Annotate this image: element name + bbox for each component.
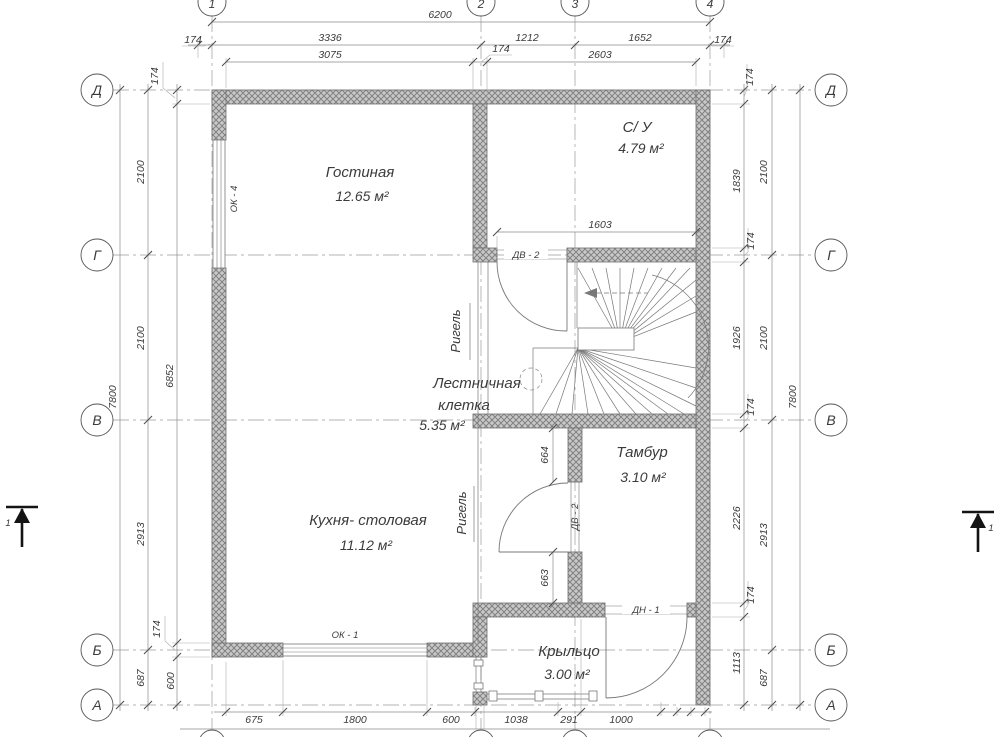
- section-label-right: 1: [988, 523, 993, 534]
- stair-landing: [578, 328, 634, 350]
- girder-label-upper: Ригель: [448, 309, 463, 352]
- wall-axis-g-east: [567, 248, 696, 262]
- dim-2100-left-1: 2100: [135, 160, 147, 185]
- dim-2100-left-2: 2100: [135, 326, 147, 351]
- dim-3336: 3336: [318, 32, 342, 44]
- floor-plan-drawing: 1 2 3 4 Д Г В Б А Д Г В Б А 1 1 Гостиная: [0, 0, 1000, 737]
- axis-row-b-left: Б: [92, 642, 101, 658]
- axis-col-4: 4: [707, 0, 714, 11]
- wall-east: [696, 90, 710, 705]
- dim-1212: 1212: [515, 32, 539, 44]
- axis-row-d-right: Д: [824, 82, 836, 98]
- axis-col-2: 2: [477, 0, 485, 11]
- dim-174-top-mid: 174: [492, 43, 510, 55]
- dim-6200: 6200: [428, 9, 452, 21]
- dim-1839: 1839: [731, 169, 743, 193]
- room-stairwell-name-1: Лестничная: [432, 375, 520, 392]
- door-dv2-kitchen-label: ДВ - 2: [570, 503, 581, 531]
- axis-markers: 1 2 3 4 Д Г В Б А Д Г В Б А: [81, 0, 847, 737]
- windows: [213, 140, 427, 656]
- window-ok1: [283, 644, 427, 656]
- dim-2226: 2226: [731, 506, 743, 531]
- dim-2100-right-2: 2100: [758, 326, 770, 351]
- wall-vestibule-south: [473, 603, 605, 617]
- dim-174-left-bottom: 174: [151, 620, 163, 638]
- room-bathroom-name: С/ У: [623, 119, 653, 136]
- dim-600-left: 600: [165, 672, 177, 690]
- door-dv2-top-label: ДВ - 2: [512, 250, 540, 261]
- axis-col-3: 3: [572, 0, 579, 11]
- window-ok1-label: ОК - 1: [332, 630, 359, 641]
- dim-174-right-2: 174: [745, 232, 757, 250]
- dim-1603: 1603: [588, 219, 612, 231]
- axis-row-v-right: В: [826, 412, 835, 428]
- door-dv2-top-swing: [497, 262, 567, 331]
- stair-start-symbol: [520, 368, 542, 390]
- dim-1800: 1800: [343, 714, 367, 726]
- section-arrow-right: [970, 513, 986, 528]
- wall-axis-g-west-stub: [473, 248, 497, 262]
- dim-2603: 2603: [587, 49, 612, 61]
- wall-west-upper: [212, 90, 226, 140]
- dim-174-top-left: 174: [184, 34, 202, 46]
- dim-291: 291: [559, 714, 578, 726]
- dim-2913-left: 2913: [135, 522, 147, 547]
- section-label-left: 1: [5, 518, 10, 529]
- dim-6852: 6852: [164, 364, 176, 388]
- dim-687-left: 687: [135, 668, 147, 687]
- porch-post: [473, 692, 487, 705]
- dim-2100-right-1: 2100: [758, 160, 770, 185]
- dim-1113: 1113: [731, 652, 743, 674]
- room-bathroom-area: 4.79 м²: [618, 140, 665, 156]
- dim-2913-right: 2913: [758, 523, 770, 548]
- dim-174-right-1: 174: [744, 68, 756, 86]
- dim-174-right-4: 174: [745, 586, 757, 604]
- dim-1652: 1652: [628, 32, 652, 44]
- dim-600-bottom: 600: [442, 714, 460, 726]
- wall-vestibule-west-upper: [568, 428, 582, 482]
- wall-living-bathroom: [473, 104, 487, 248]
- dim-174-right-3: 174: [745, 398, 757, 416]
- door-dv2-kitchen-swing: [499, 483, 568, 552]
- room-labels: Гостиная 12.65 м² С/ У 4.79 м² Лестнична…: [309, 119, 668, 682]
- section-mark-right: 1: [962, 512, 994, 552]
- dimension-labels: 6200 3336 1212 1652 174 174 3075 174 260…: [107, 9, 799, 726]
- wall-kitchen-south-west: [212, 643, 283, 657]
- dim-7800-left: 7800: [107, 385, 119, 409]
- section-mark-left: 1: [5, 507, 38, 547]
- axis-row-a-left: А: [91, 697, 101, 713]
- dim-174-left-top: 174: [149, 67, 161, 85]
- axis-row-v-left: В: [92, 412, 101, 428]
- room-vestibule-name: Тамбур: [616, 444, 667, 461]
- dim-687-right: 687: [758, 668, 770, 687]
- wall-north: [212, 90, 710, 104]
- room-living-name: Гостиная: [326, 164, 395, 181]
- wall-stair-south: [473, 414, 696, 428]
- door-dn1-label: ДН - 1: [631, 605, 659, 616]
- staircase: [478, 262, 708, 643]
- stair-lower-flight: [540, 348, 696, 414]
- dim-675: 675: [245, 714, 263, 726]
- room-kitchen-area: 11.12 м²: [340, 537, 393, 553]
- door-dn1-swing: [606, 617, 687, 698]
- dim-1000: 1000: [609, 714, 633, 726]
- room-porch-area: 3.00 м²: [544, 666, 591, 682]
- girder-label-lower: Ригель: [454, 491, 469, 534]
- dim-664: 664: [539, 446, 551, 464]
- dim-174-top-right: 174: [714, 34, 732, 46]
- room-kitchen-name: Кухня- столовая: [309, 512, 427, 529]
- room-stairwell-area: 5.35 м²: [419, 417, 466, 433]
- dim-1038: 1038: [504, 714, 528, 726]
- dim-1926: 1926: [731, 326, 743, 350]
- axis-row-a-right: А: [825, 697, 835, 713]
- window-ok4-label: ОК - 4: [229, 186, 240, 213]
- dim-7800-right: 7800: [787, 385, 799, 409]
- room-stairwell-name-2: клетка: [438, 397, 490, 414]
- window-ok4: [213, 140, 225, 268]
- axis-row-b-right: Б: [826, 642, 835, 658]
- wall-porch-west: [473, 617, 487, 657]
- floor-plan-canvas: 1 2 3 4 Д Г В Б А Д Г В Б А 1 1 Гостиная: [0, 0, 1000, 737]
- room-porch-name: Крыльцо: [538, 643, 600, 660]
- wall-vestibule-south-stub: [687, 603, 696, 617]
- wall-west-lower: [212, 268, 226, 657]
- section-arrow-left: [14, 508, 30, 523]
- room-vestibule-area: 3.10 м²: [620, 469, 667, 485]
- dim-3075: 3075: [318, 49, 342, 61]
- axis-col-1: 1: [209, 0, 216, 11]
- axis-row-d-left: Д: [90, 82, 102, 98]
- dim-663: 663: [539, 569, 551, 587]
- room-living-area: 12.65 м²: [335, 188, 390, 204]
